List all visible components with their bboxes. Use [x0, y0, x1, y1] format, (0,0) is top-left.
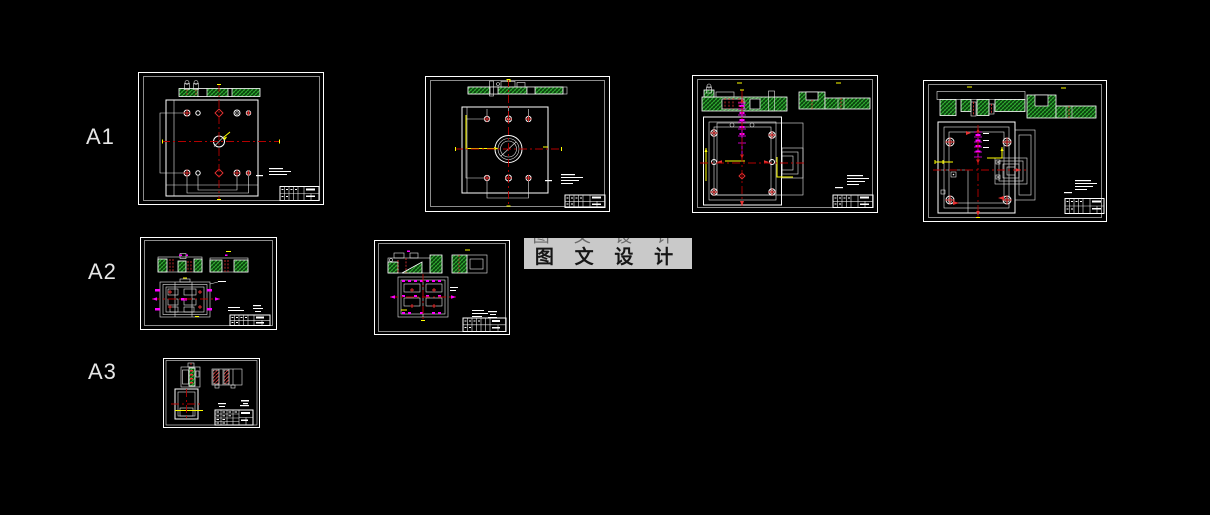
- plate-with-bore: [462, 107, 548, 198]
- leaders: [705, 148, 794, 181]
- section-view-right: [1027, 88, 1096, 118]
- assembly-plan-view: [938, 122, 1035, 213]
- hatched-section-bar: [468, 81, 567, 96]
- section-view-left: [937, 87, 1025, 116]
- title-block: [280, 187, 319, 201]
- assembly-plan-view: [704, 117, 804, 205]
- section-view-left: [158, 254, 202, 273]
- notes-text: [228, 305, 263, 312]
- sheet-frame: [141, 238, 277, 330]
- notes-text: [472, 310, 497, 318]
- title-block: [215, 410, 253, 425]
- title-block: [833, 195, 873, 208]
- notes-text: [835, 175, 869, 188]
- detail-view-left: [181, 363, 200, 387]
- assembly-view: [390, 274, 458, 321]
- view-labels: [218, 400, 249, 407]
- notes-text: [256, 168, 291, 176]
- front-view: [171, 389, 203, 419]
- cad-sheet-overview: A1 A2 A3: [0, 0, 1210, 515]
- centerlines: [162, 84, 280, 200]
- drawing-a2-2: [374, 240, 510, 335]
- section-view-right: [799, 83, 870, 109]
- leaders: [466, 115, 548, 150]
- hatched-section-bar: [179, 81, 260, 97]
- plate-top-view: [160, 100, 258, 196]
- watermark: 图 文 设 计 图 文 设 计: [524, 238, 692, 269]
- drawing-a1-4: [923, 80, 1107, 222]
- drawing-a1-2: [425, 76, 610, 212]
- notes-text: [545, 174, 583, 184]
- leaders: [935, 147, 1004, 164]
- drawing-a2-1: [140, 237, 277, 330]
- title-block: [463, 318, 506, 332]
- notes-text: [1064, 180, 1097, 193]
- section-view-left: [388, 251, 442, 274]
- title-block: [1065, 199, 1104, 214]
- drawing-a1-3: [692, 75, 878, 213]
- row-label-a3: A3: [88, 359, 117, 385]
- assembly-view: [152, 278, 226, 317]
- watermark-text: 图 文 设 计: [524, 242, 692, 269]
- title-block: [565, 195, 605, 208]
- section-view-right: [452, 250, 487, 273]
- centerlines: [455, 79, 562, 207]
- drawing-a1-1: [138, 72, 324, 205]
- drawing-a3-1: [163, 358, 260, 428]
- row-label-a2: A2: [88, 259, 117, 285]
- section-view-right: [210, 252, 248, 273]
- detail-view-right: [212, 369, 242, 388]
- sheet-frame: [693, 76, 878, 213]
- dimension-chain: [974, 128, 989, 164]
- title-block: [230, 315, 270, 326]
- row-label-a1: A1: [86, 124, 115, 150]
